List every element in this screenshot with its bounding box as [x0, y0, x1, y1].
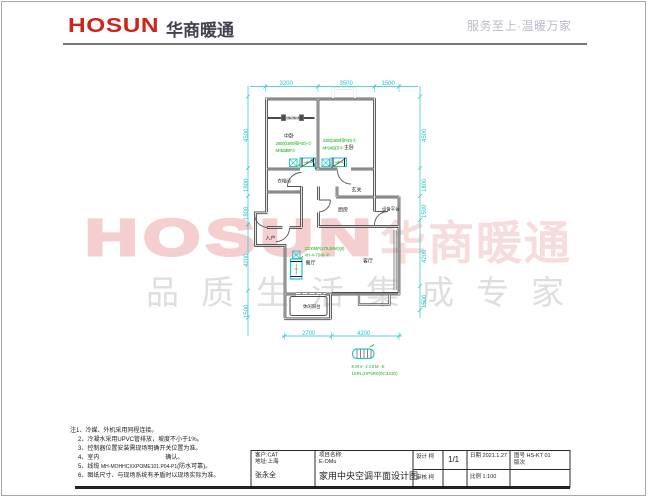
svg-text:1/1: 1/1	[448, 455, 460, 464]
svg-text:E·OMu: E·OMu	[319, 459, 336, 465]
svg-text:项目名称:: 项目名称:	[319, 451, 343, 459]
svg-text:版次: 版次	[514, 458, 526, 466]
svg-text:家用中央空调平面设计图: 家用中央空调平面设计图	[319, 470, 418, 481]
svg-text:地址:上海: 地址:上海	[255, 457, 279, 465]
svg-text:比例 1:100: 比例 1:100	[470, 472, 496, 480]
svg-text:设计 柯: 设计 柯	[416, 452, 435, 460]
svg-text:审核 柯: 审核 柯	[416, 473, 435, 481]
svg-text:图号 HS-KT 01: 图号 HS-KT 01	[514, 451, 551, 459]
svg-text:张永全: 张永全	[255, 470, 276, 479]
svg-text:日期 2021.1.27: 日期 2021.1.27	[470, 452, 507, 459]
svg-text:客户:CAT: 客户:CAT	[255, 451, 279, 459]
